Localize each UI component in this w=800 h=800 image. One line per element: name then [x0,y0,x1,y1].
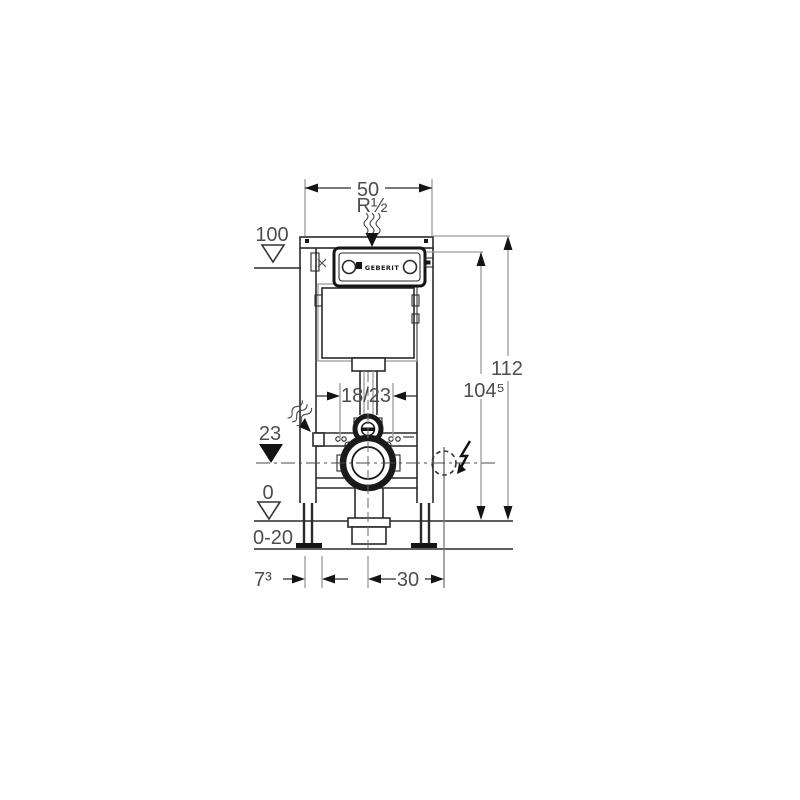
brand-label: GEBERIT [365,264,400,272]
label-floor-range: 0-20 [253,527,293,549]
dim-height-112: 112 [491,358,523,380]
brand-logo-block [356,262,362,269]
screw-mark-left [305,239,309,243]
water-supply-inlet [286,399,324,446]
frame-leg-left [304,503,312,543]
foot-plate-left [296,543,322,548]
rail-bracket [311,253,319,271]
frame-top-bar [300,237,433,248]
datum-label-23: 23 [259,423,281,445]
datum-label-100: 100 [255,224,288,246]
label-water-supply: R½ [356,195,387,217]
open-triangle-icon-0 [258,502,280,519]
dim-fixing-18-23: 18/23 [341,385,391,407]
dim-offset-30: 30 [397,569,419,591]
dim-height-104-5: 104⁵ [463,380,505,402]
dim-offset-7-3: 7³ [254,569,272,591]
filled-triangle-icon-23 [259,444,283,463]
supply-connection-box [313,433,324,446]
foot-plate-right [411,543,437,548]
screw-mark-right [424,239,428,243]
electrical-connection [432,441,470,479]
outlet-socket [348,488,390,544]
access-cover: GEBERIT [318,248,433,286]
datum-label-0: 0 [262,482,273,504]
frame-rail-left [300,248,316,503]
installation-diagram: GEBERIT [0,0,800,800]
lightning-bolt-icon [457,441,470,474]
datum-markers [254,245,301,519]
open-triangle-icon-100 [262,245,284,262]
frame-leg-right [421,503,429,543]
flush-pipe-collar [352,358,385,371]
